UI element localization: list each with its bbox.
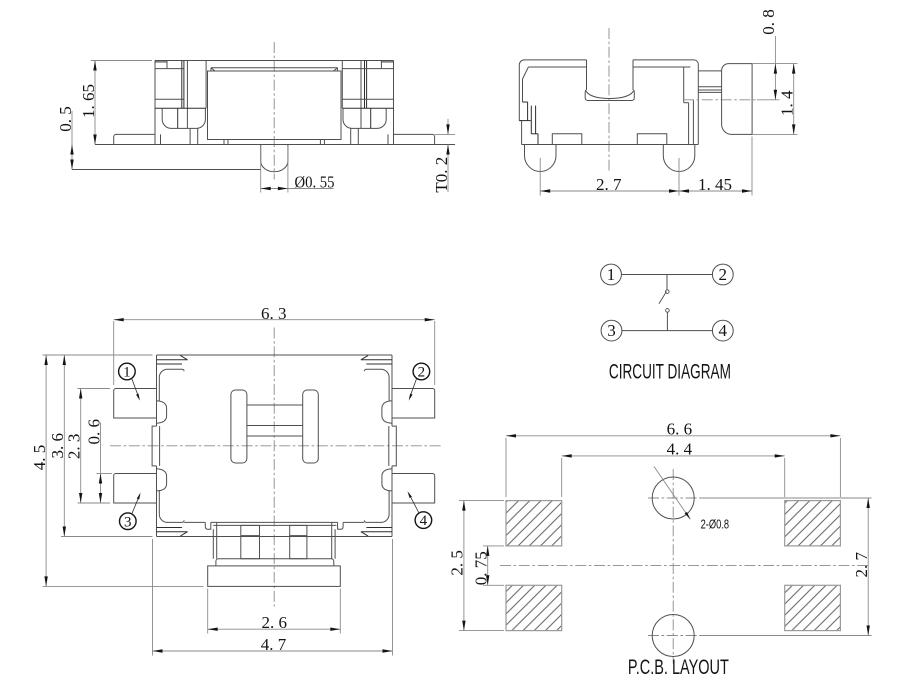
svg-text:1. 4: 1. 4 [778,90,797,116]
svg-text:4. 4: 4. 4 [667,440,693,459]
svg-text:4. 7: 4. 7 [261,635,287,654]
svg-text:1: 1 [607,265,616,284]
svg-text:2. 6: 2. 6 [261,613,287,632]
svg-text:CIRCUIT DIAGRAM: CIRCUIT DIAGRAM [609,360,731,384]
svg-text:1: 1 [123,365,131,381]
svg-text:3: 3 [124,514,132,530]
svg-text:P.C.B. LAYOUT: P.C.B. LAYOUT [628,655,729,679]
svg-text:2: 2 [719,265,728,284]
svg-text:0. 75: 0. 75 [472,551,491,585]
svg-text:2. 7: 2. 7 [852,552,871,578]
svg-text:1. 45: 1. 45 [698,175,732,194]
svg-text:Ø0. 55: Ø0. 55 [295,172,335,191]
svg-text:T0. 2: T0. 2 [432,157,451,193]
svg-text:2. 3: 2. 3 [65,434,84,460]
svg-text:2-Ø0.8: 2-Ø0.8 [701,516,730,531]
svg-text:0. 8: 0. 8 [759,9,778,35]
svg-text:6. 6: 6. 6 [667,420,693,439]
svg-text:4: 4 [420,513,428,529]
svg-text:3: 3 [607,321,616,340]
svg-text:4: 4 [719,321,728,340]
svg-text:0. 6: 0. 6 [84,419,103,445]
svg-text:1. 65: 1. 65 [79,84,98,118]
svg-text:2. 5: 2. 5 [448,550,467,576]
svg-text:4. 5: 4. 5 [30,445,49,471]
svg-text:2: 2 [418,365,426,381]
svg-text:2. 7: 2. 7 [596,175,622,194]
svg-text:6. 3: 6. 3 [261,304,287,323]
svg-text:0. 5: 0. 5 [56,106,75,132]
